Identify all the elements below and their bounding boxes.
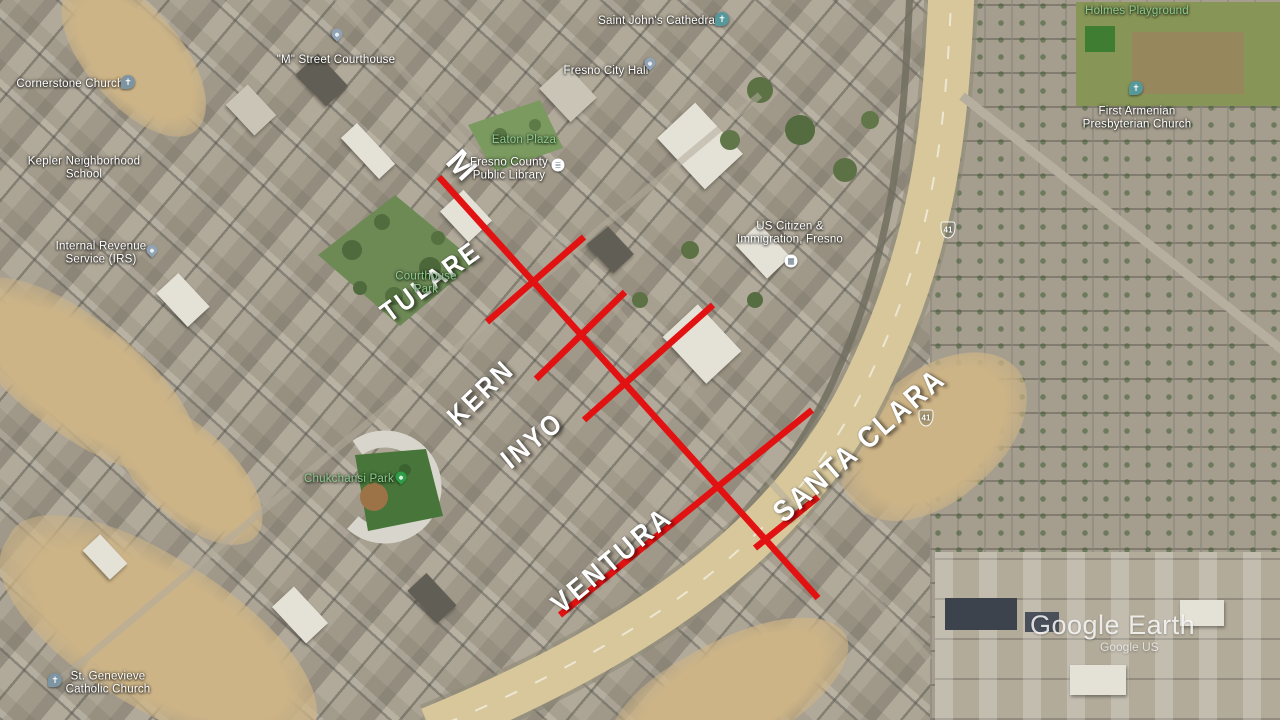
place-label-saint-johns-cathedral: Saint John's Cathedral (598, 15, 718, 28)
church-icon: ✝ (1129, 81, 1143, 95)
library-icon: ≣ (552, 159, 565, 172)
place-label-m-street-courthouse: "M" Street Courthouse (277, 54, 395, 67)
church-icon: ✝ (48, 673, 62, 687)
church-icon: ✝ (715, 12, 729, 26)
place-label-us-citizen-immigration: US Citizen & Immigration, Fresno (737, 221, 843, 246)
place-label-fresno-county-public-library: Fresno County Public Library (470, 157, 548, 182)
church-icon: ✝ (121, 75, 135, 89)
place-label-cornerstone-church: Cornerstone Church (16, 78, 123, 91)
place-label-holmes-playground: Holmes Playground (1085, 5, 1189, 18)
place-label-fresno-city-hall: Fresno City Hall (564, 65, 649, 78)
place-label-eaton-plaza: Eaton Plaza (492, 134, 556, 147)
place-label-chukchansi-park: Chukchansi Park (304, 473, 394, 486)
uscis-icon: ▦ (785, 255, 798, 268)
imagery-attribution: Google US (1100, 640, 1159, 654)
place-label-internal-revenue-service: Internal Revenue Service (IRS) (56, 241, 147, 266)
google-earth-watermark: Google Earth (1030, 610, 1195, 641)
map-viewport[interactable]: M TULARE KERN INYO VENTURA SANTA CLARA C… (0, 0, 1280, 720)
place-label-courthouse-park: Courthouse Park (395, 271, 456, 296)
place-label-first-armenian-presbyterian-church: First Armenian Presbyterian Church (1083, 106, 1192, 131)
place-label-st-genevieve-catholic-church: St. Genevieve Catholic Church (66, 671, 151, 696)
place-label-kepler-neighborhood-school: Kepler Neighborhood School (28, 156, 141, 181)
